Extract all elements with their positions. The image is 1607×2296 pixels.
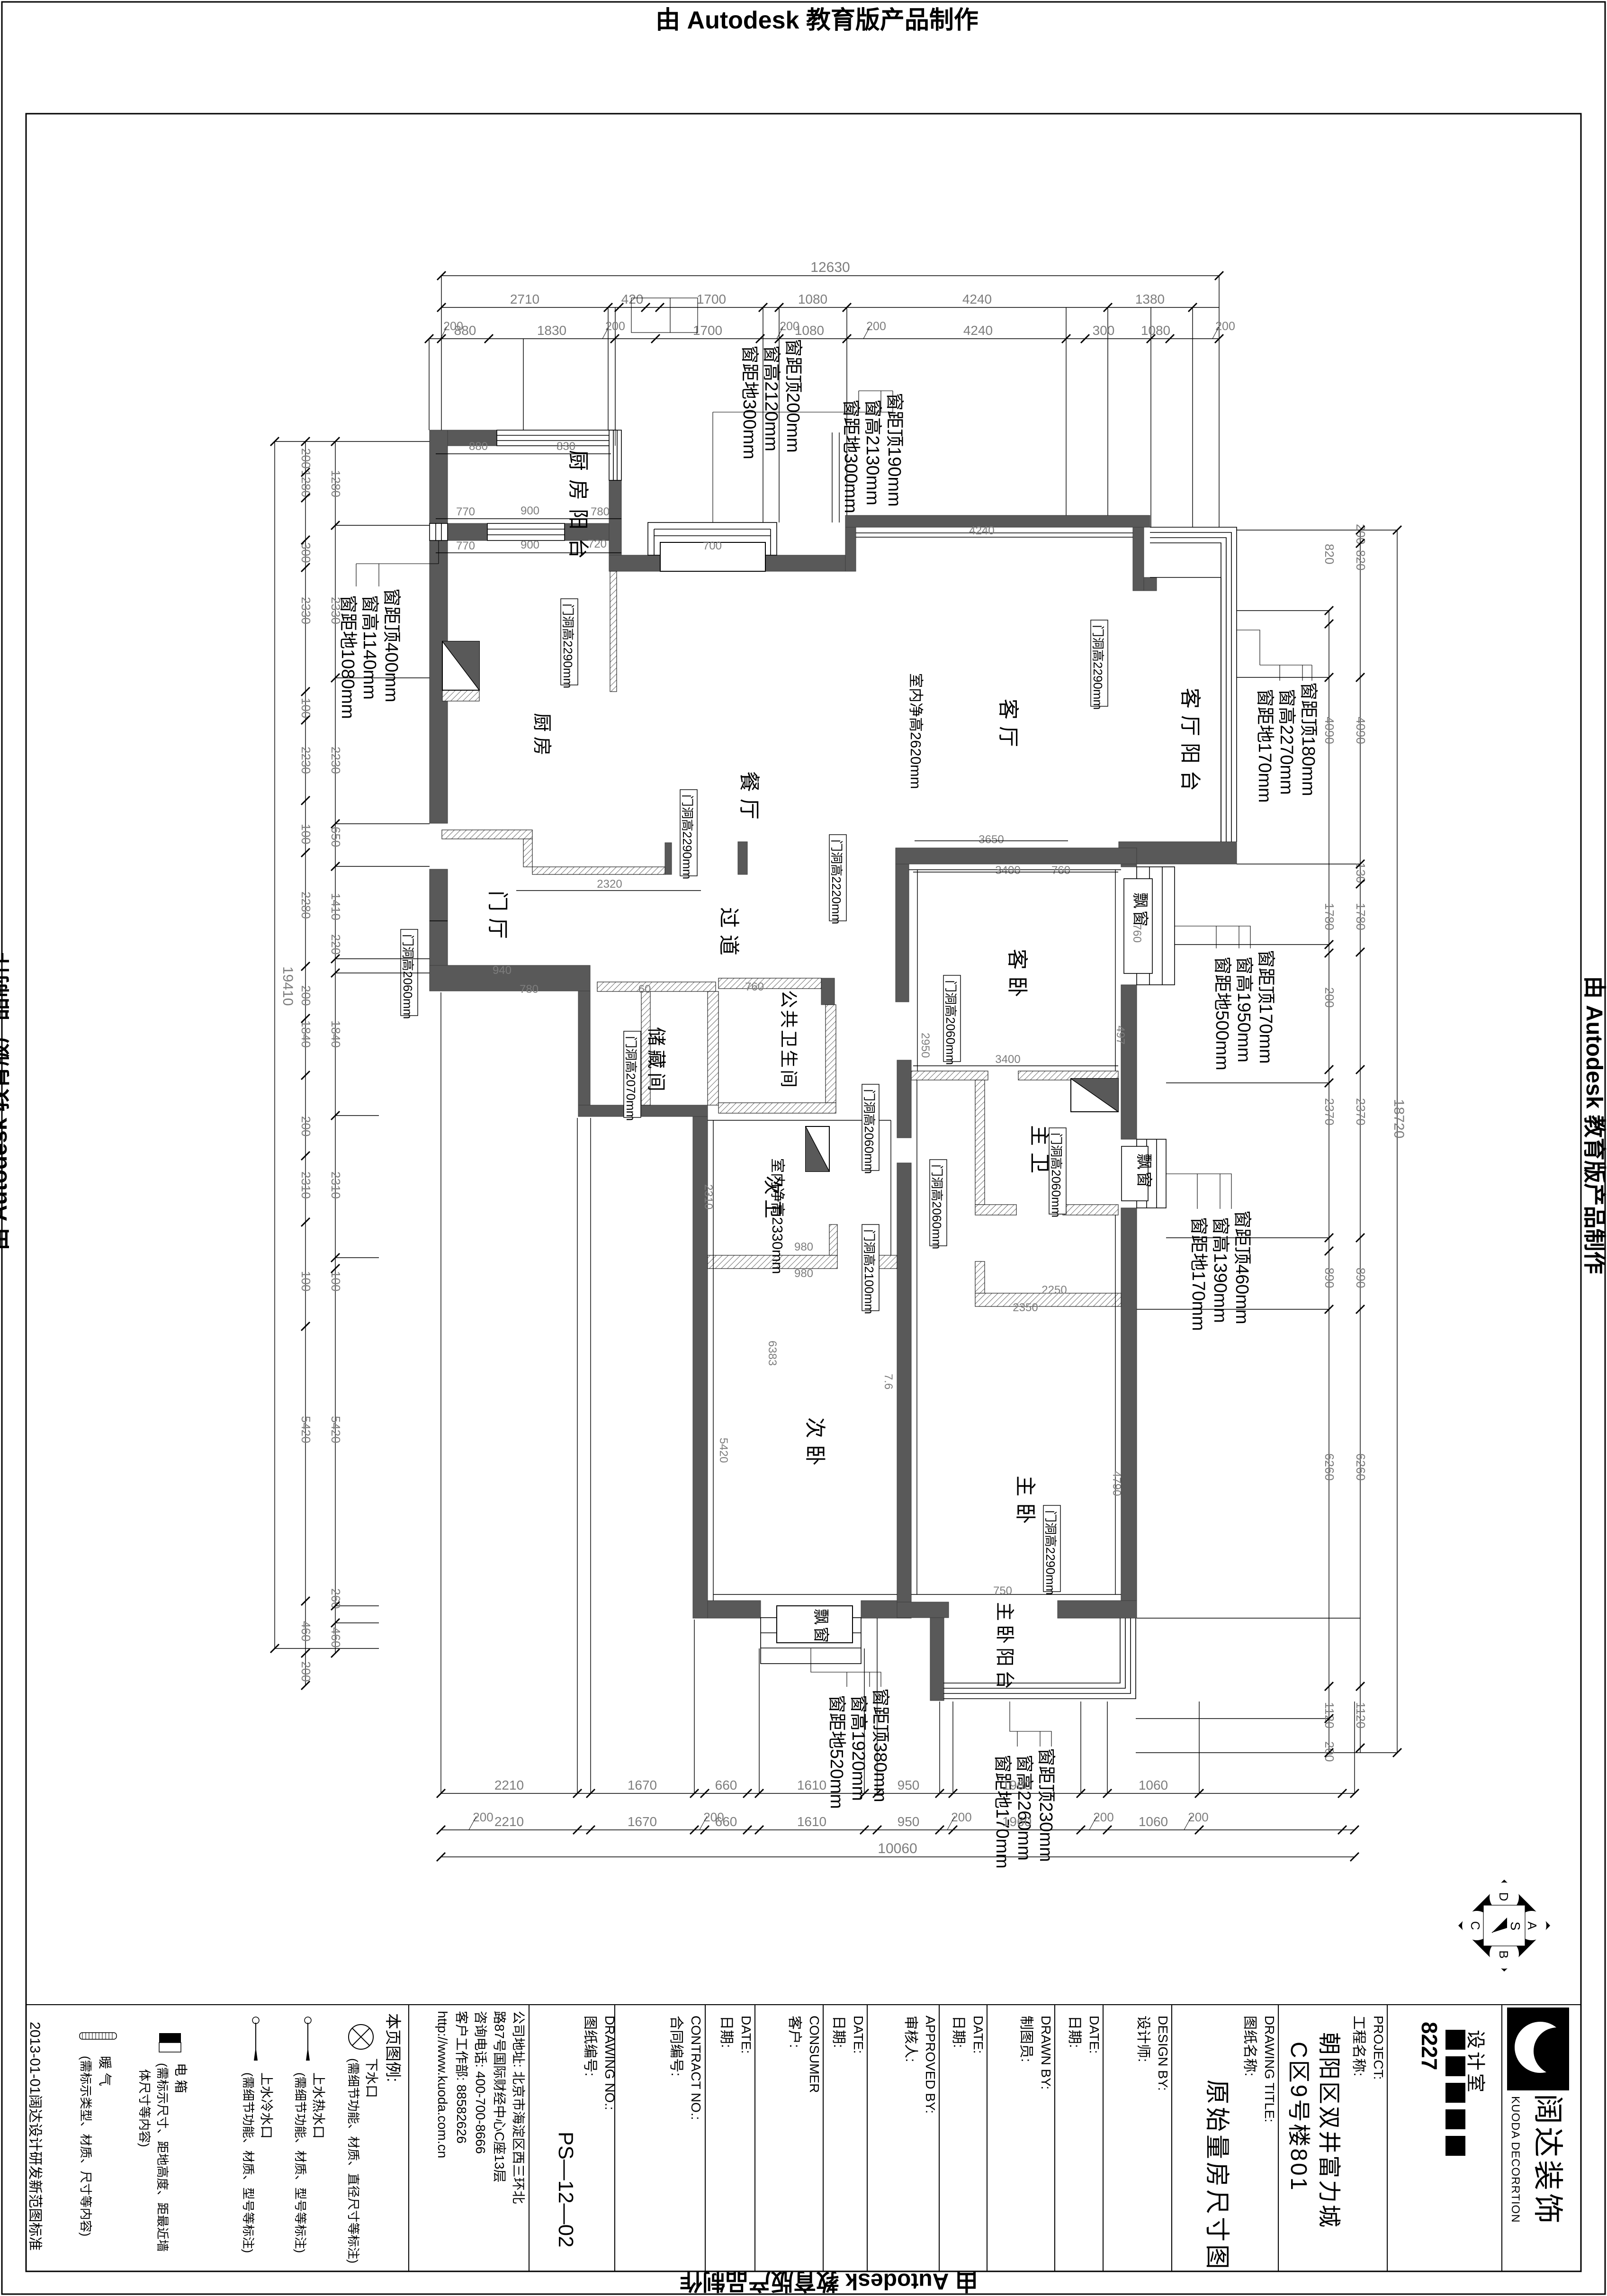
svg-text:5420: 5420 [299,1416,313,1443]
svg-text:D: D [1497,1892,1511,1901]
svg-text:窗高1140mm: 窗高1140mm [359,595,379,700]
svg-text:2280: 2280 [299,891,313,919]
svg-text:2310: 2310 [702,1184,715,1209]
svg-text:DATE:: DATE: [739,2016,754,2053]
svg-text:1670: 1670 [628,1778,657,1792]
svg-text:窗高2130mm: 窗高2130mm [862,399,882,505]
svg-text:220: 220 [329,934,343,954]
svg-text:门洞高2070mm: 门洞高2070mm [624,1036,638,1121]
svg-text:图纸编号:: 图纸编号: [582,2016,598,2076]
svg-text:820: 820 [1354,550,1368,570]
svg-text:2013-01-01阔达设计研发新范图标准: 2013-01-01阔达设计研发新范图标准 [27,2022,43,2251]
svg-text:100: 100 [329,1271,343,1291]
svg-text:2350: 2350 [1013,1301,1038,1314]
svg-text:1060: 1060 [1139,1778,1168,1792]
svg-text:2310: 2310 [299,1171,313,1199]
svg-text:由 Autodesk 教育版产品制作: 由 Autodesk 教育版产品制作 [655,7,979,34]
svg-text:窗高1920mm: 窗高1920mm [848,1695,868,1801]
svg-text:200: 200 [299,1661,313,1682]
svg-text:窗距地170mm: 窗距地170mm [1188,1217,1208,1331]
svg-text:DRAWING TITLE:: DRAWING TITLE: [1262,2016,1277,2123]
svg-text:1700: 1700 [697,292,726,306]
svg-text:760: 760 [1051,864,1070,877]
svg-text:室内净高2330mm: 室内净高2330mm [769,1158,786,1274]
svg-text:窗距顶460mm: 窗距顶460mm [1232,1210,1252,1324]
svg-text:朝阳区双井富力城: 朝阳区双井富力城 [1316,2032,1341,2229]
svg-text:1840: 1840 [299,1020,313,1048]
svg-text:1120: 1120 [1322,1702,1337,1729]
svg-text:4240: 4240 [962,292,992,306]
svg-text:原始量房尺寸图: 原始量房尺寸图 [1203,2080,1230,2272]
svg-text:窗高1390mm: 窗高1390mm [1210,1217,1230,1323]
svg-text:2230: 2230 [329,747,343,774]
svg-text:主卧阳台: 主卧阳台 [994,1602,1015,1693]
svg-text:1780: 1780 [1322,903,1337,930]
svg-text:200: 200 [299,1116,313,1136]
svg-text:1670: 1670 [628,1814,657,1829]
svg-text:3650: 3650 [979,833,1004,846]
svg-text:1080: 1080 [1141,323,1170,338]
svg-text:420: 420 [621,292,644,306]
svg-text:窗距顶190mm: 窗距顶190mm [884,393,904,507]
svg-text:APPROVED BY:: APPROVED BY: [923,2016,938,2114]
svg-text:1840: 1840 [329,1020,343,1048]
svg-text:窗距顶400mm: 窗距顶400mm [381,588,401,702]
svg-text:窗距地300mm: 窗距地300mm [739,345,759,459]
svg-text:980: 980 [794,1241,813,1253]
svg-text:1780: 1780 [1354,903,1368,930]
svg-text:DATE:: DATE: [971,2016,986,2053]
svg-text:A: A [1525,1921,1539,1930]
svg-text:飘窗: 飘窗 [812,1609,830,1645]
svg-text:设计师:: 设计师: [1135,2016,1151,2062]
svg-text:4240: 4240 [963,323,993,338]
svg-text:5420: 5420 [329,1416,343,1443]
svg-text:厨房: 厨房 [531,713,552,760]
svg-text:2210: 2210 [494,1814,524,1829]
svg-text:(需细节功能、材质、型号等标注): (需细节功能、材质、型号等标注) [241,2072,255,2253]
svg-text:8227: 8227 [1417,2022,1442,2070]
svg-text:合同编号:: 合同编号: [668,2016,684,2076]
svg-text:2250: 2250 [1041,1284,1067,1297]
svg-text:200: 200 [299,448,313,468]
svg-text:200: 200 [299,985,313,1006]
svg-text:1280: 1280 [299,470,313,497]
svg-text:1080: 1080 [798,292,827,306]
svg-text:门厅: 门厅 [486,891,509,945]
svg-text:日期:: 日期: [951,2016,966,2048]
svg-text:460: 460 [299,1621,313,1641]
svg-text:(需标示尺寸、距地高度、距最近墙: (需标示尺寸、距地高度、距最近墙 [155,2063,170,2252]
svg-text:940: 940 [493,964,512,977]
svg-text:日期:: 日期: [718,2016,734,2048]
svg-text:4090: 4090 [1354,717,1368,744]
svg-text:DRAWN BY:: DRAWN BY: [1039,2016,1053,2089]
svg-text:DRAWING NO.:: DRAWING NO.: [602,2016,617,2110]
svg-text:过道: 过道 [717,907,740,962]
svg-text:770: 770 [456,540,475,552]
svg-text:650: 650 [329,827,343,847]
svg-text:130: 130 [1354,863,1368,883]
svg-text:2330: 2330 [329,597,343,624]
svg-text:路87号国际财经中心C座13层: 路87号国际财经中心C座13层 [492,2011,507,2183]
svg-text:上水冷水口: 上水冷水口 [259,2072,274,2139]
svg-text:750: 750 [993,1585,1012,1597]
svg-text:窗高2270mm: 窗高2270mm [1276,689,1296,795]
svg-text:(需细节功能、材质、型号等标注): (需细节功能、材质、型号等标注) [293,2072,307,2253]
svg-text:1380: 1380 [1135,292,1165,306]
svg-text:客卧: 客卧 [1005,949,1029,1004]
svg-text:公共卫生间: 公共卫生间 [778,990,798,1089]
svg-text:200: 200 [1354,524,1368,544]
svg-text:1960: 1960 [1002,1814,1032,1829]
svg-text:审核人:: 审核人: [903,2016,918,2062]
svg-text:日期:: 日期: [1067,2016,1082,2048]
svg-text:公司地址: 北京市海淀区西三环北: 公司地址: 北京市海淀区西三环北 [511,2011,526,2204]
svg-text:1060: 1060 [1139,1814,1168,1829]
svg-text:电 箱: 电 箱 [173,2063,188,2093]
svg-text:200: 200 [1322,987,1337,1008]
svg-text:6383: 6383 [766,1341,779,1366]
svg-text:PROJECT:: PROJECT: [1371,2016,1386,2080]
svg-text:DESIGN BY:: DESIGN BY: [1156,2016,1170,2091]
svg-text:由 Autodesk 教育版产品制作: 由 Autodesk 教育版产品制作 [680,2269,978,2294]
svg-text:厨房阳台: 厨房阳台 [566,450,590,567]
svg-text:窗距顶170mm: 窗距顶170mm [1256,950,1275,1064]
svg-text:门洞高2060mm: 门洞高2060mm [862,1089,876,1174]
svg-text:C: C [1468,1921,1482,1930]
svg-text:门洞高2290mm: 门洞高2290mm [680,794,694,879]
svg-text:6260: 6260 [1322,1453,1337,1481]
svg-text:阔达装饰: 阔达装饰 [1531,2094,1565,2226]
svg-text:60: 60 [638,983,651,996]
svg-text:CONTRACT NO.:: CONTRACT NO.: [689,2016,703,2120]
svg-text:门洞高2060mm: 门洞高2060mm [1049,1133,1063,1217]
svg-text:7.6: 7.6 [882,1374,895,1389]
svg-text:2710: 2710 [510,292,539,306]
svg-text:4090: 4090 [1322,717,1337,744]
svg-text:10060: 10060 [878,1841,917,1856]
svg-text:780: 780 [591,505,610,518]
svg-text:890: 890 [1354,1268,1368,1288]
svg-text:900: 900 [521,504,539,517]
svg-text:770: 770 [456,505,475,518]
svg-text:3400: 3400 [995,1053,1020,1066]
svg-text:760: 760 [745,981,764,993]
svg-text:6260: 6260 [1354,1453,1368,1481]
svg-text:2950: 2950 [919,1033,932,1058]
svg-text:780: 780 [520,983,539,996]
svg-text:门洞高2290mm: 门洞高2290mm [1043,1510,1058,1595]
svg-text:1610: 1610 [797,1814,826,1829]
svg-text:720: 720 [588,538,607,550]
svg-text:窗距地300mm: 窗距地300mm [841,399,861,513]
svg-text:主卫: 主卫 [1028,1125,1051,1180]
svg-text:KUODA DECORRTION: KUODA DECORRTION [1509,2096,1522,2223]
svg-text:暖 气: 暖 气 [98,2056,112,2086]
svg-text:由 Autodesk 教育版产品制作: 由 Autodesk 教育版产品制作 [1581,976,1607,1274]
svg-text:820: 820 [1322,544,1337,564]
svg-text:门洞高2060mm: 门洞高2060mm [401,934,415,1019]
svg-text:餐厅: 餐厅 [737,771,761,826]
svg-text:1960: 1960 [1002,1778,1032,1792]
svg-text:次卧: 次卧 [803,1417,826,1472]
svg-text:客厅: 客厅 [997,699,1020,754]
svg-text:日期:: 日期: [831,2016,846,2048]
svg-text:http://www.kuoda.com.cn: http://www.kuoda.com.cn [435,2011,450,2158]
svg-text:下水口: 下水口 [364,2058,379,2098]
svg-text:19410: 19410 [280,966,296,1006]
svg-text:客户工作部: 88582626: 客户工作部: 88582626 [454,2011,469,2143]
svg-text:200: 200 [780,320,799,333]
svg-text:300: 300 [299,542,313,563]
svg-text:CONSUMER: CONSUMER [807,2016,822,2093]
svg-text:窗距地170mm: 窗距地170mm [1255,689,1275,803]
svg-text:工程名称:: 工程名称: [1351,2016,1366,2076]
svg-text:窗距地500mm: 窗距地500mm [1212,956,1232,1071]
svg-text:设计室: 设计室 [1465,2030,1486,2095]
svg-text:200: 200 [605,320,625,333]
svg-text:1700: 1700 [693,323,722,338]
svg-text:窗距地170mm: 窗距地170mm [992,1755,1012,1869]
svg-text:DATE:: DATE: [1087,2016,1102,2053]
svg-text:2230: 2230 [299,747,313,774]
svg-text:2310: 2310 [329,1171,343,1199]
svg-text:制图员:: 制图员: [1018,2016,1034,2062]
svg-text:窗距顶380mm: 窗距顶380mm [870,1688,890,1802]
svg-text:2330: 2330 [299,597,313,624]
svg-text:门洞高2060mm: 门洞高2060mm [930,1164,944,1249]
svg-text:1610: 1610 [797,1778,826,1792]
svg-text:飘窗: 飘窗 [1135,1153,1153,1189]
svg-text:890: 890 [1322,1268,1337,1288]
svg-text:体尺寸等内容): 体尺寸等内容) [137,2069,152,2147]
svg-text:12630: 12630 [810,260,850,275]
svg-text:100: 100 [299,824,313,844]
svg-text:窗距顶230mm: 窗距顶230mm [1036,1748,1056,1862]
svg-text:900: 900 [521,539,539,551]
svg-text:门洞高2060mm: 门洞高2060mm [943,980,958,1065]
svg-text:200: 200 [443,320,463,333]
svg-text:1830: 1830 [537,323,566,338]
svg-text:700: 700 [703,540,722,552]
svg-text:窗高2260mm: 窗高2260mm [1014,1755,1034,1861]
svg-text:飘窗: 飘窗 [1131,892,1149,928]
svg-text:本页图例:: 本页图例: [384,2013,402,2082]
svg-text:主卧: 主卧 [1014,1476,1037,1531]
svg-text:100: 100 [299,698,313,718]
svg-text:窗高2120mm: 窗高2120mm [761,345,781,451]
svg-text:300: 300 [1093,323,1115,338]
svg-text:1280: 1280 [329,470,343,497]
svg-text:5420: 5420 [717,1438,730,1463]
svg-text:980: 980 [794,1267,813,1280]
svg-text:4790: 4790 [1110,1471,1123,1496]
svg-text:4240: 4240 [969,524,994,537]
svg-text:窗距顶200mm: 窗距顶200mm [783,339,803,453]
svg-text:B: B [1497,1950,1511,1958]
svg-text:由 Autodesk 教育版产品制作: 由 Autodesk 教育版产品制作 [0,952,12,1250]
svg-text:咨询电话: 400-700-8666: 咨询电话: 400-700-8666 [473,2011,488,2154]
svg-text:18720: 18720 [1391,1099,1407,1138]
svg-text:(需细节功能、材质、直径尺寸等标注): (需细节功能、材质、直径尺寸等标注) [346,2058,360,2263]
svg-text:(需标示类型、材质、尺寸等内容): (需标示类型、材质、尺寸等内容) [79,2056,93,2236]
svg-text:1410: 1410 [329,893,343,920]
svg-text:2370: 2370 [1354,1098,1368,1125]
svg-text:S: S [1508,1922,1523,1931]
svg-text:门洞高2290mm: 门洞高2290mm [1091,625,1105,710]
svg-text:门洞高2100mm: 门洞高2100mm [862,1229,876,1314]
svg-text:图纸名称:: 图纸名称: [1242,2016,1257,2076]
svg-text:门洞高2290mm: 门洞高2290mm [561,603,575,688]
svg-text:760: 760 [1131,924,1143,943]
svg-text:窗距顶180mm: 窗距顶180mm [1298,682,1318,796]
svg-text:窗距地520mm: 窗距地520mm [826,1695,846,1809]
svg-text:497: 497 [1114,1026,1127,1044]
svg-text:3400: 3400 [995,864,1020,877]
svg-text:2210: 2210 [494,1778,524,1792]
svg-text:2320: 2320 [597,878,622,891]
svg-text:950: 950 [898,1814,920,1829]
svg-text:2370: 2370 [1322,1098,1337,1125]
svg-text:客户:: 客户: [787,2016,802,2048]
svg-text:PS—12—02: PS—12—02 [554,2132,577,2248]
svg-text:窗高1950mm: 窗高1950mm [1234,956,1254,1062]
svg-text:储藏间: 储藏间 [646,1027,666,1095]
svg-text:1120: 1120 [1354,1702,1368,1729]
svg-text:客厅阳台: 客厅阳台 [1178,688,1202,798]
svg-text:460: 460 [329,1627,343,1648]
svg-text:门洞高2220mm: 门洞高2220mm [829,839,844,924]
svg-text:室内净高2620mm: 室内净高2620mm [907,673,924,789]
svg-text:100: 100 [299,1271,313,1291]
svg-text:C区9号楼801: C区9号楼801 [1286,2042,1311,2192]
svg-text:DATE:: DATE: [851,2016,866,2053]
svg-text:830: 830 [557,440,575,453]
svg-text:上水热水口: 上水热水口 [311,2072,326,2139]
svg-text:200: 200 [1215,320,1235,333]
svg-text:880: 880 [469,440,488,453]
svg-text:950: 950 [898,1778,920,1792]
svg-text:200: 200 [866,320,886,333]
svg-text:660: 660 [715,1778,737,1792]
